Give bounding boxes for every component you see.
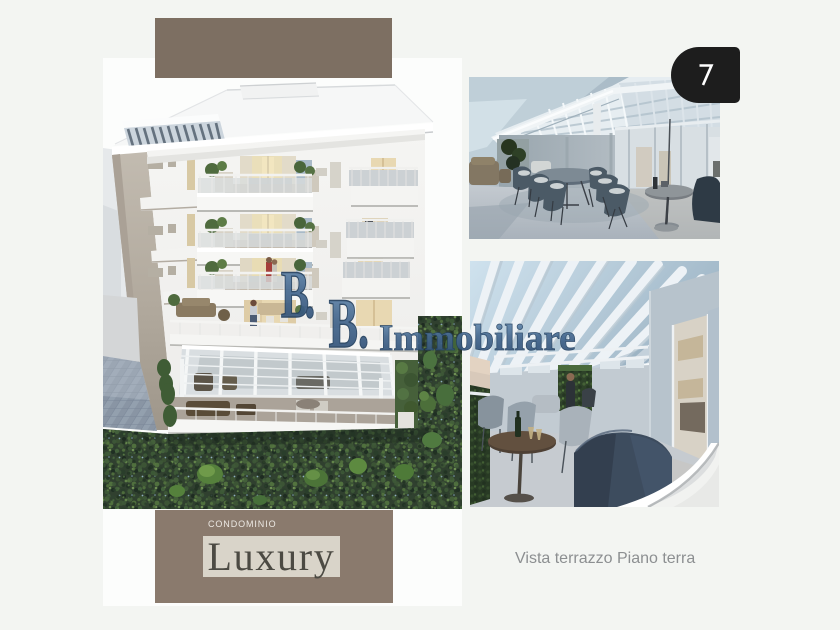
svg-text:B.: B. xyxy=(329,283,369,362)
svg-text:B.: B. xyxy=(281,258,315,333)
svg-text:Immobiliare: Immobiliare xyxy=(379,318,576,359)
